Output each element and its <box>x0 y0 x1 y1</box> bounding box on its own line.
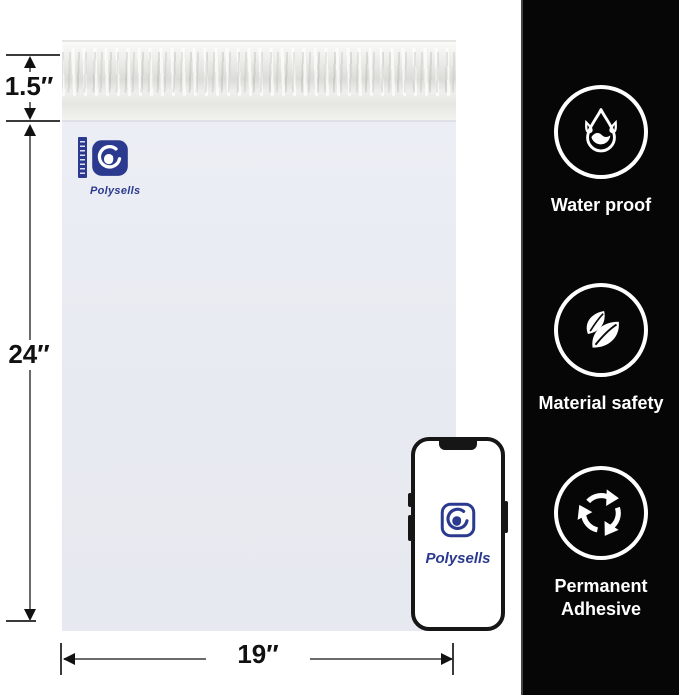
feature-material-safety: Material safety <box>523 283 679 415</box>
phone-notch <box>439 440 477 450</box>
dimension-tick <box>6 120 60 122</box>
product-image: Polysells 1.5″ 24″ 19″ <box>0 0 679 695</box>
dimension-arrow-down <box>24 108 36 120</box>
bag-body <box>62 122 456 631</box>
feature-permanent-adhesive: Permanent Adhesive <box>523 466 679 620</box>
feature-label: Material safety <box>526 392 675 415</box>
water-drop-icon <box>554 85 648 179</box>
brand-wordmark: Polysells <box>90 185 140 197</box>
bag-brand-logo: Polysells <box>78 137 140 197</box>
phone-wordmark: Polysells <box>425 550 490 567</box>
phone-side-button <box>408 515 412 541</box>
bag-width-label: 19″ <box>206 640 310 670</box>
leaves-icon <box>554 283 648 377</box>
feature-sidebar: Water proof Material safety <box>521 0 679 695</box>
feature-label: Permanent Adhesive <box>523 575 679 620</box>
dimension-arrow-right <box>441 653 453 665</box>
dimension-arrow-up <box>24 56 36 68</box>
phone-mockup: Polysells <box>411 437 505 631</box>
dimension-arrow-left <box>63 653 75 665</box>
dimension-tick <box>60 643 62 675</box>
flap-height-label: 1.5″ <box>0 72 60 102</box>
recycle-arrows-icon <box>554 466 648 560</box>
phone-logo-icon <box>440 502 476 543</box>
phone-side-button <box>504 501 508 533</box>
dimension-arrow-up <box>24 124 36 136</box>
bag-flap <box>62 40 456 122</box>
feature-waterproof: Water proof <box>523 85 679 217</box>
feature-label: Water proof <box>539 194 663 217</box>
polysells-logo-icon <box>91 137 129 184</box>
dimension-tick <box>6 620 36 622</box>
vertical-brand-bar <box>78 137 87 178</box>
bag-height-label: 24″ <box>0 340 60 370</box>
phone-side-button <box>408 493 412 507</box>
